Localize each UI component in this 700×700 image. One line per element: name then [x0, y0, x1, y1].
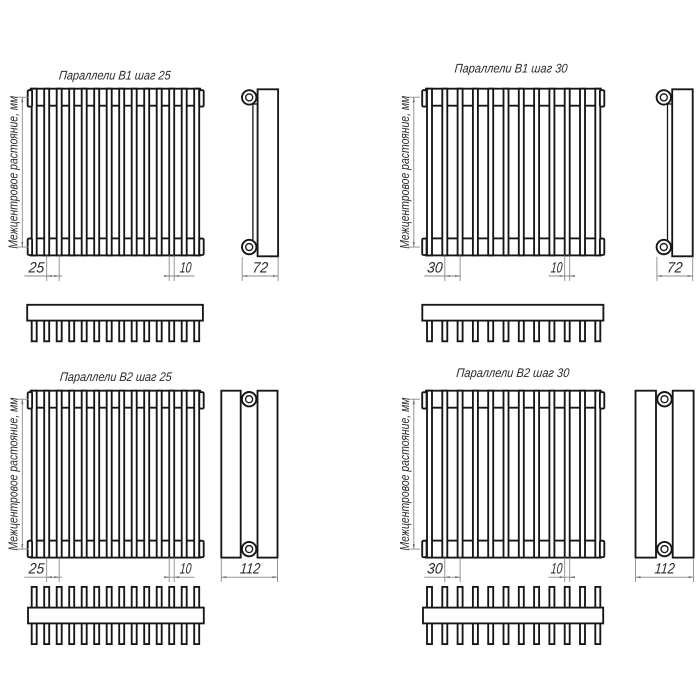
svg-text:10: 10	[179, 259, 192, 276]
svg-text:25: 25	[27, 259, 46, 276]
svg-text:Межцентровое растояние, мм: Межцентровое растояние, мм	[7, 95, 21, 248]
svg-text:25: 25	[27, 561, 46, 578]
svg-text:72: 72	[252, 259, 270, 276]
svg-text:Параллели В2 шаг 25: Параллели В2 шаг 25	[59, 370, 172, 384]
svg-text:Межцентровое растояние, мм: Межцентровое растояние, мм	[398, 397, 412, 550]
svg-text:Параллели В2 шаг 30: Параллели В2 шаг 30	[456, 366, 570, 380]
svg-text:30: 30	[426, 561, 444, 578]
svg-text:Межцентровое растояние, мм: Межцентровое растояние, мм	[7, 397, 21, 550]
svg-text:Межцентровое растояние, мм: Межцентровое растояние, мм	[398, 95, 412, 248]
svg-text:112: 112	[654, 561, 676, 578]
svg-text:Параллели В1 шаг 25: Параллели В1 шаг 25	[58, 69, 171, 83]
svg-text:72: 72	[666, 259, 684, 276]
svg-text:10: 10	[550, 259, 563, 276]
svg-text:30: 30	[426, 259, 444, 276]
svg-text:Параллели В1 шаг 30: Параллели В1 шаг 30	[454, 61, 568, 75]
svg-text:10: 10	[550, 561, 563, 578]
svg-text:112: 112	[239, 561, 261, 578]
svg-text:10: 10	[179, 561, 192, 578]
